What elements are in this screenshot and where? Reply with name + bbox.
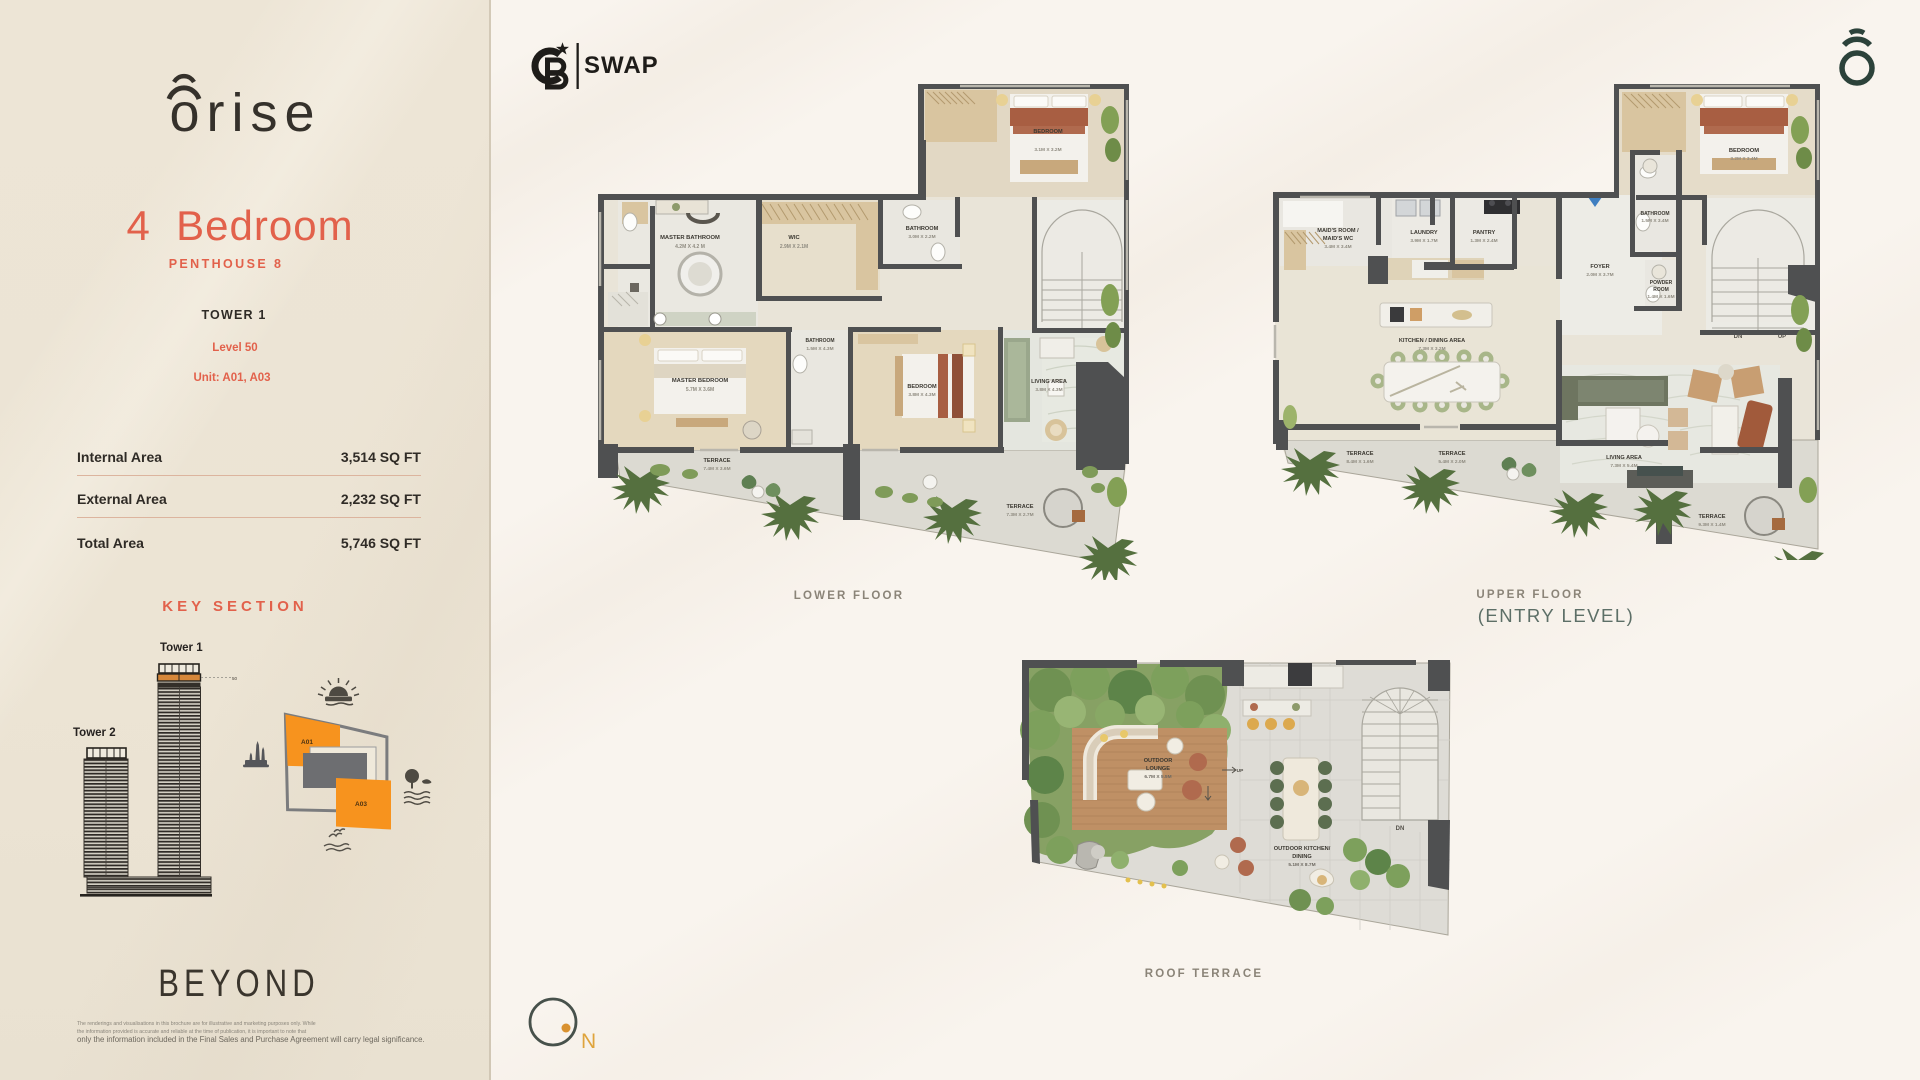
svg-text:N: N bbox=[581, 1030, 596, 1053]
svg-text:UP: UP bbox=[1237, 768, 1244, 774]
svg-text:ROOM: ROOM bbox=[1653, 287, 1669, 293]
svg-text:7.3M X 5.4M: 7.3M X 5.4M bbox=[1610, 463, 1637, 469]
svg-text:BEDROOM: BEDROOM bbox=[907, 384, 937, 390]
svg-text:1.4M X 1.6M: 1.4M X 1.6M bbox=[1647, 294, 1674, 300]
svg-text:3.4M X 3.4M: 3.4M X 3.4M bbox=[1324, 244, 1351, 250]
svg-text:9.3M X 1.4M: 9.3M X 1.4M bbox=[1698, 522, 1725, 528]
svg-text:WIC: WIC bbox=[788, 235, 800, 241]
svg-text:5.4M X 2.0M: 5.4M X 2.0M bbox=[1438, 459, 1465, 465]
svg-text:5.1M X 8.7M: 5.1M X 8.7M bbox=[1288, 862, 1315, 868]
svg-text:BATHROOM: BATHROOM bbox=[1640, 211, 1669, 217]
svg-text:PANTRY: PANTRY bbox=[1473, 230, 1496, 236]
svg-text:MASTER BEDROOM: MASTER BEDROOM bbox=[672, 378, 729, 384]
svg-text:6.7M X 5.5M: 6.7M X 5.5M bbox=[1144, 774, 1171, 780]
svg-text:50: 50 bbox=[232, 676, 238, 681]
svg-text:LIVING AREA: LIVING AREA bbox=[1031, 379, 1067, 385]
svg-text:OUTDOOR: OUTDOOR bbox=[1144, 758, 1173, 764]
svg-text:3.8M X 4.3M: 3.8M X 4.3M bbox=[908, 392, 935, 398]
svg-text:A03: A03 bbox=[355, 801, 367, 808]
svg-text:7.4M X 3.6M: 7.4M X 3.6M bbox=[703, 466, 730, 472]
svg-text:SWAP: SWAP bbox=[584, 52, 659, 79]
svg-text:2.0M X 3.7M: 2.0M X 3.7M bbox=[1586, 272, 1613, 278]
svg-text:OUTDOOR KITCHEN/: OUTDOOR KITCHEN/ bbox=[1274, 846, 1331, 852]
svg-text:Tower 2: Tower 2 bbox=[73, 727, 116, 739]
svg-text:BEDROOM: BEDROOM bbox=[1729, 148, 1759, 154]
svg-text:Tower 1: Tower 1 bbox=[160, 642, 203, 654]
svg-text:FOYER: FOYER bbox=[1590, 264, 1609, 270]
svg-text:1.5M X 4.3M: 1.5M X 4.3M bbox=[806, 346, 833, 352]
svg-text:3.1M X 3.2M: 3.1M X 3.2M bbox=[1034, 147, 1061, 153]
svg-text:LIVING AREA: LIVING AREA bbox=[1606, 455, 1642, 461]
svg-text:BATHROOM: BATHROOM bbox=[805, 338, 834, 344]
svg-text:TERRACE: TERRACE bbox=[1698, 514, 1725, 520]
svg-text:2.9M X 2.1M: 2.9M X 2.1M bbox=[780, 244, 808, 250]
svg-text:MAID'S WC: MAID'S WC bbox=[1323, 236, 1353, 242]
svg-text:TERRACE: TERRACE bbox=[1438, 451, 1465, 457]
svg-text:TERRACE: TERRACE bbox=[1346, 451, 1373, 457]
svg-text:5.7M X 3.6M: 5.7M X 3.6M bbox=[686, 387, 714, 393]
svg-text:LOUNGE: LOUNGE bbox=[1146, 766, 1170, 772]
svg-text:MAID'S ROOM /: MAID'S ROOM / bbox=[1317, 228, 1359, 234]
svg-text:BEDROOM: BEDROOM bbox=[1033, 129, 1063, 135]
svg-text:BATHROOM: BATHROOM bbox=[906, 226, 939, 232]
svg-text:POWDER: POWDER bbox=[1650, 280, 1673, 286]
svg-text:A01: A01 bbox=[301, 739, 313, 746]
svg-text:3.2M X 3.4M: 3.2M X 3.4M bbox=[1730, 156, 1757, 162]
svg-text:3.8M X 4.3M: 3.8M X 4.3M bbox=[1035, 387, 1062, 393]
svg-text:3.9M X 1.7M: 3.9M X 1.7M bbox=[1410, 238, 1437, 244]
svg-text:7.3M X 3.2M: 7.3M X 3.2M bbox=[1418, 346, 1445, 352]
svg-text:8.4M X 1.6M: 8.4M X 1.6M bbox=[1346, 459, 1373, 465]
svg-text:4.2M X 4.2 M: 4.2M X 4.2 M bbox=[675, 244, 705, 250]
svg-text:TERRACE: TERRACE bbox=[703, 458, 730, 464]
svg-text:MASTER BATHROOM: MASTER BATHROOM bbox=[660, 235, 720, 241]
svg-text:1.5M X 3.4M: 1.5M X 3.4M bbox=[1641, 218, 1668, 224]
svg-text:LAUNDRY: LAUNDRY bbox=[1410, 230, 1437, 236]
svg-text:1.3M X 2.4M: 1.3M X 2.4M bbox=[1470, 238, 1497, 244]
svg-text:KITCHEN / DINING AREA: KITCHEN / DINING AREA bbox=[1399, 338, 1465, 344]
svg-text:7.3M X 2.7M: 7.3M X 2.7M bbox=[1006, 512, 1033, 518]
svg-text:TERRACE: TERRACE bbox=[1006, 504, 1033, 510]
svg-text:DINING: DINING bbox=[1292, 854, 1312, 860]
svg-text:3.0M X 2.2M: 3.0M X 2.2M bbox=[908, 234, 935, 240]
svg-text:DN: DN bbox=[1396, 826, 1405, 832]
